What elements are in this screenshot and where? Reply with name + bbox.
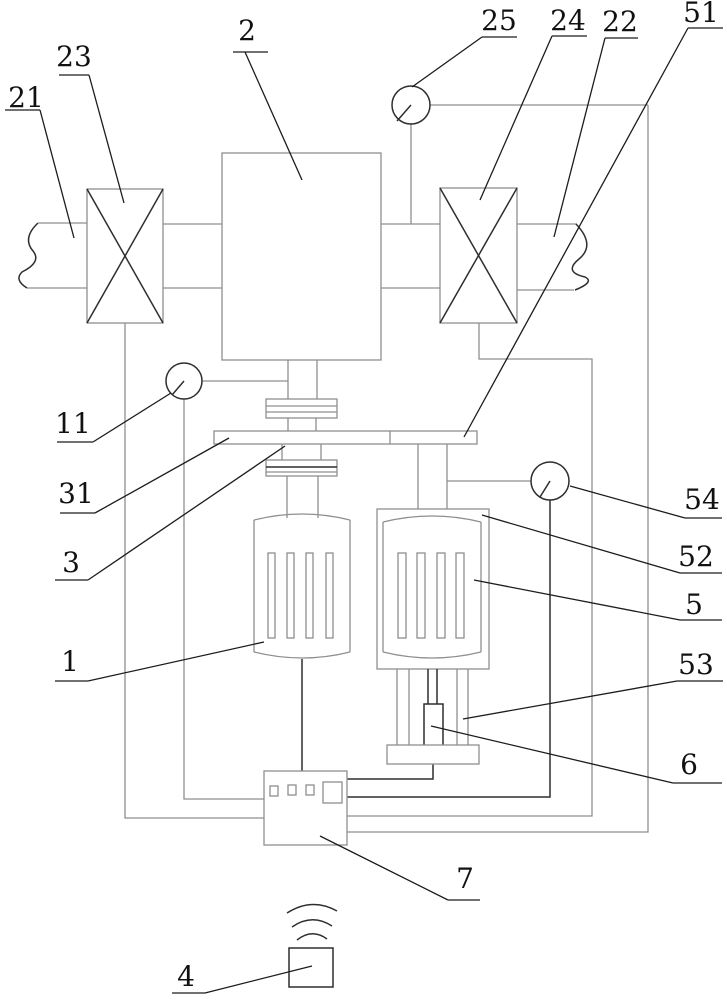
wifi-arc-icon bbox=[287, 904, 337, 913]
label-31-leader bbox=[95, 438, 229, 513]
diagram-canvas: 2 21 23 25 24 22 11 bbox=[0, 0, 727, 1000]
label-25-text: 25 bbox=[481, 4, 517, 37]
shaft-assembly bbox=[214, 360, 477, 518]
label-22-leader bbox=[554, 38, 605, 237]
label-3-leader bbox=[88, 446, 285, 580]
pipe-break-left bbox=[19, 223, 38, 288]
label-6-text: 6 bbox=[680, 748, 698, 781]
reference-labels: 2 21 23 25 24 22 11 bbox=[5, 0, 723, 993]
label-53-leader bbox=[463, 681, 677, 719]
label-53-text: 53 bbox=[678, 648, 714, 681]
controller bbox=[264, 771, 347, 845]
label-24-leader bbox=[480, 36, 552, 200]
label-52-text: 52 bbox=[678, 540, 714, 573]
flange-lower bbox=[266, 460, 337, 476]
wifi-arc-icon bbox=[292, 920, 332, 927]
label-23-text: 23 bbox=[56, 40, 92, 73]
cylinder-1 bbox=[254, 514, 350, 658]
flange-upper bbox=[266, 399, 337, 418]
wireless-module bbox=[287, 904, 337, 987]
label-25-leader bbox=[412, 37, 482, 87]
label-11-leader bbox=[93, 393, 171, 442]
label-24-text: 24 bbox=[550, 4, 586, 37]
process-box bbox=[222, 153, 381, 360]
base-plate bbox=[387, 745, 479, 764]
label-23: 23 bbox=[56, 40, 124, 203]
wifi-arc-icon bbox=[297, 934, 327, 940]
control-lines bbox=[125, 105, 648, 832]
label-54-text: 54 bbox=[684, 483, 720, 516]
cylinder-5-slot bbox=[437, 553, 445, 638]
cylinder-1-slot bbox=[306, 553, 313, 638]
outer-shell bbox=[377, 509, 489, 669]
label-54-leader bbox=[570, 486, 685, 518]
cylinder-1-bottom-arc bbox=[254, 652, 350, 658]
label-54: 54 bbox=[570, 483, 722, 518]
cylinder-1-slot bbox=[287, 553, 294, 638]
cylinder-5-assembly bbox=[377, 444, 489, 764]
label-1-text: 1 bbox=[61, 645, 79, 678]
label-5-text: 5 bbox=[685, 588, 703, 621]
gauge-11 bbox=[166, 363, 288, 399]
gauge-25 bbox=[392, 86, 648, 224]
label-5-leader bbox=[474, 580, 680, 620]
label-52-leader bbox=[482, 515, 680, 573]
label-7-text: 7 bbox=[456, 862, 474, 895]
label-11: 11 bbox=[55, 393, 171, 442]
label-22: 22 bbox=[554, 5, 638, 237]
label-1: 1 bbox=[55, 642, 264, 681]
label-52: 52 bbox=[482, 515, 722, 573]
label-23-leader bbox=[89, 75, 124, 203]
label-11-text: 11 bbox=[55, 407, 91, 440]
label-25: 25 bbox=[412, 4, 517, 87]
label-7-leader bbox=[320, 836, 448, 900]
cylinder-5-slot bbox=[456, 553, 464, 638]
mounting-plate bbox=[214, 431, 477, 444]
label-4-text: 4 bbox=[177, 960, 195, 993]
label-21-leader bbox=[40, 110, 74, 238]
label-1-leader bbox=[88, 642, 264, 681]
label-2-text: 2 bbox=[238, 14, 256, 47]
label-21-text: 21 bbox=[8, 81, 44, 114]
label-53: 53 bbox=[463, 648, 723, 719]
label-31-text: 31 bbox=[58, 477, 94, 510]
cylinder-1-top-arc bbox=[254, 514, 350, 520]
label-3-text: 3 bbox=[62, 546, 80, 579]
label-21: 21 bbox=[5, 81, 74, 238]
label-5: 5 bbox=[474, 580, 722, 621]
cylinder-1-slot bbox=[326, 553, 333, 638]
loop-gauge11-to-controller bbox=[184, 399, 264, 799]
loop-valve-left-to-controller bbox=[125, 323, 264, 818]
label-51-text: 51 bbox=[683, 0, 719, 29]
patent-figure: 2 21 23 25 24 22 11 bbox=[0, 0, 727, 1000]
label-22-text: 22 bbox=[602, 5, 638, 38]
cylinder-5-slot bbox=[417, 553, 425, 638]
remote-body bbox=[289, 948, 333, 987]
gauge-54 bbox=[447, 462, 569, 500]
cylinder-5-slot bbox=[398, 553, 406, 638]
cylinder-1-slot bbox=[268, 553, 275, 638]
